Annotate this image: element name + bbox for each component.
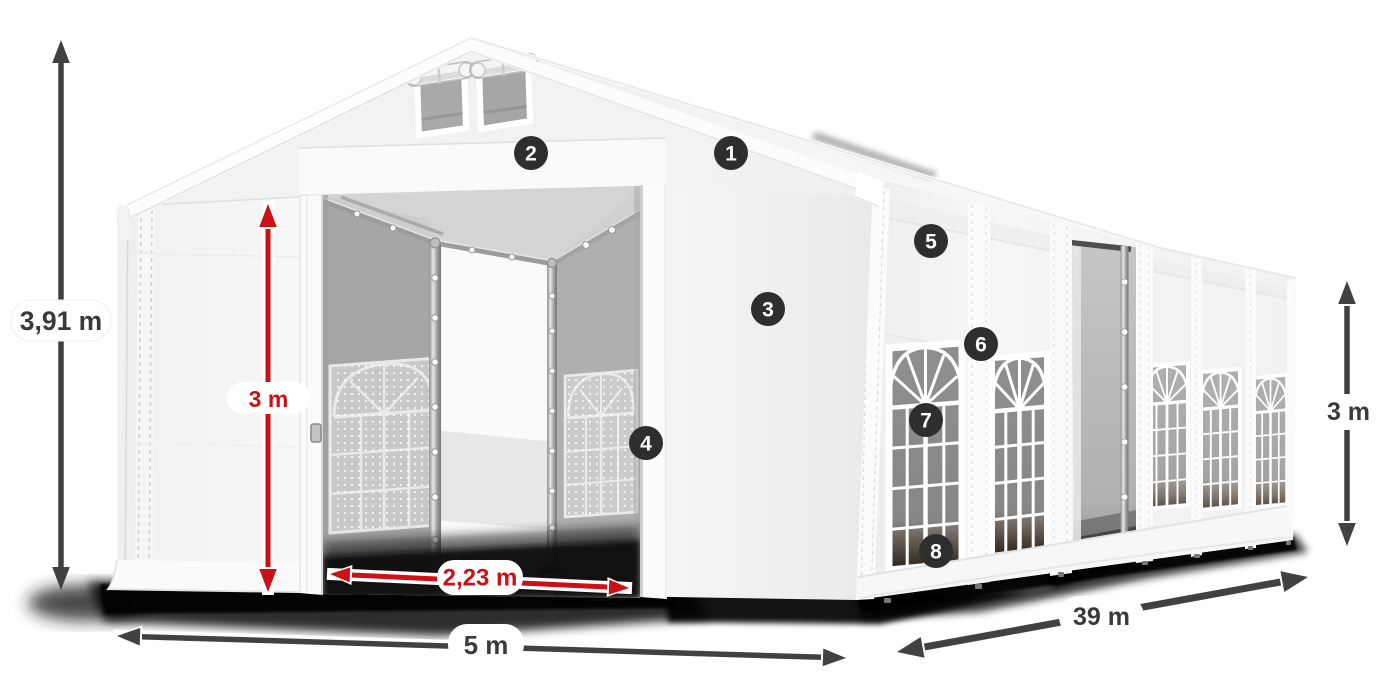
svg-text:5 m: 5 m: [464, 630, 509, 660]
svg-text:7: 7: [920, 410, 932, 433]
svg-text:3 m: 3 m: [1327, 398, 1370, 426]
svg-text:8: 8: [930, 541, 942, 564]
svg-text:3,91 m: 3,91 m: [20, 306, 103, 336]
svg-text:2,23 m: 2,23 m: [443, 565, 518, 592]
svg-text:3 m: 3 m: [249, 386, 289, 412]
svg-text:39 m: 39 m: [1073, 603, 1130, 631]
svg-text:1: 1: [725, 143, 737, 166]
svg-text:3: 3: [762, 299, 774, 322]
svg-text:4: 4: [640, 433, 652, 456]
svg-text:6: 6: [975, 334, 987, 357]
svg-text:2: 2: [525, 143, 537, 166]
svg-text:5: 5: [925, 231, 937, 254]
